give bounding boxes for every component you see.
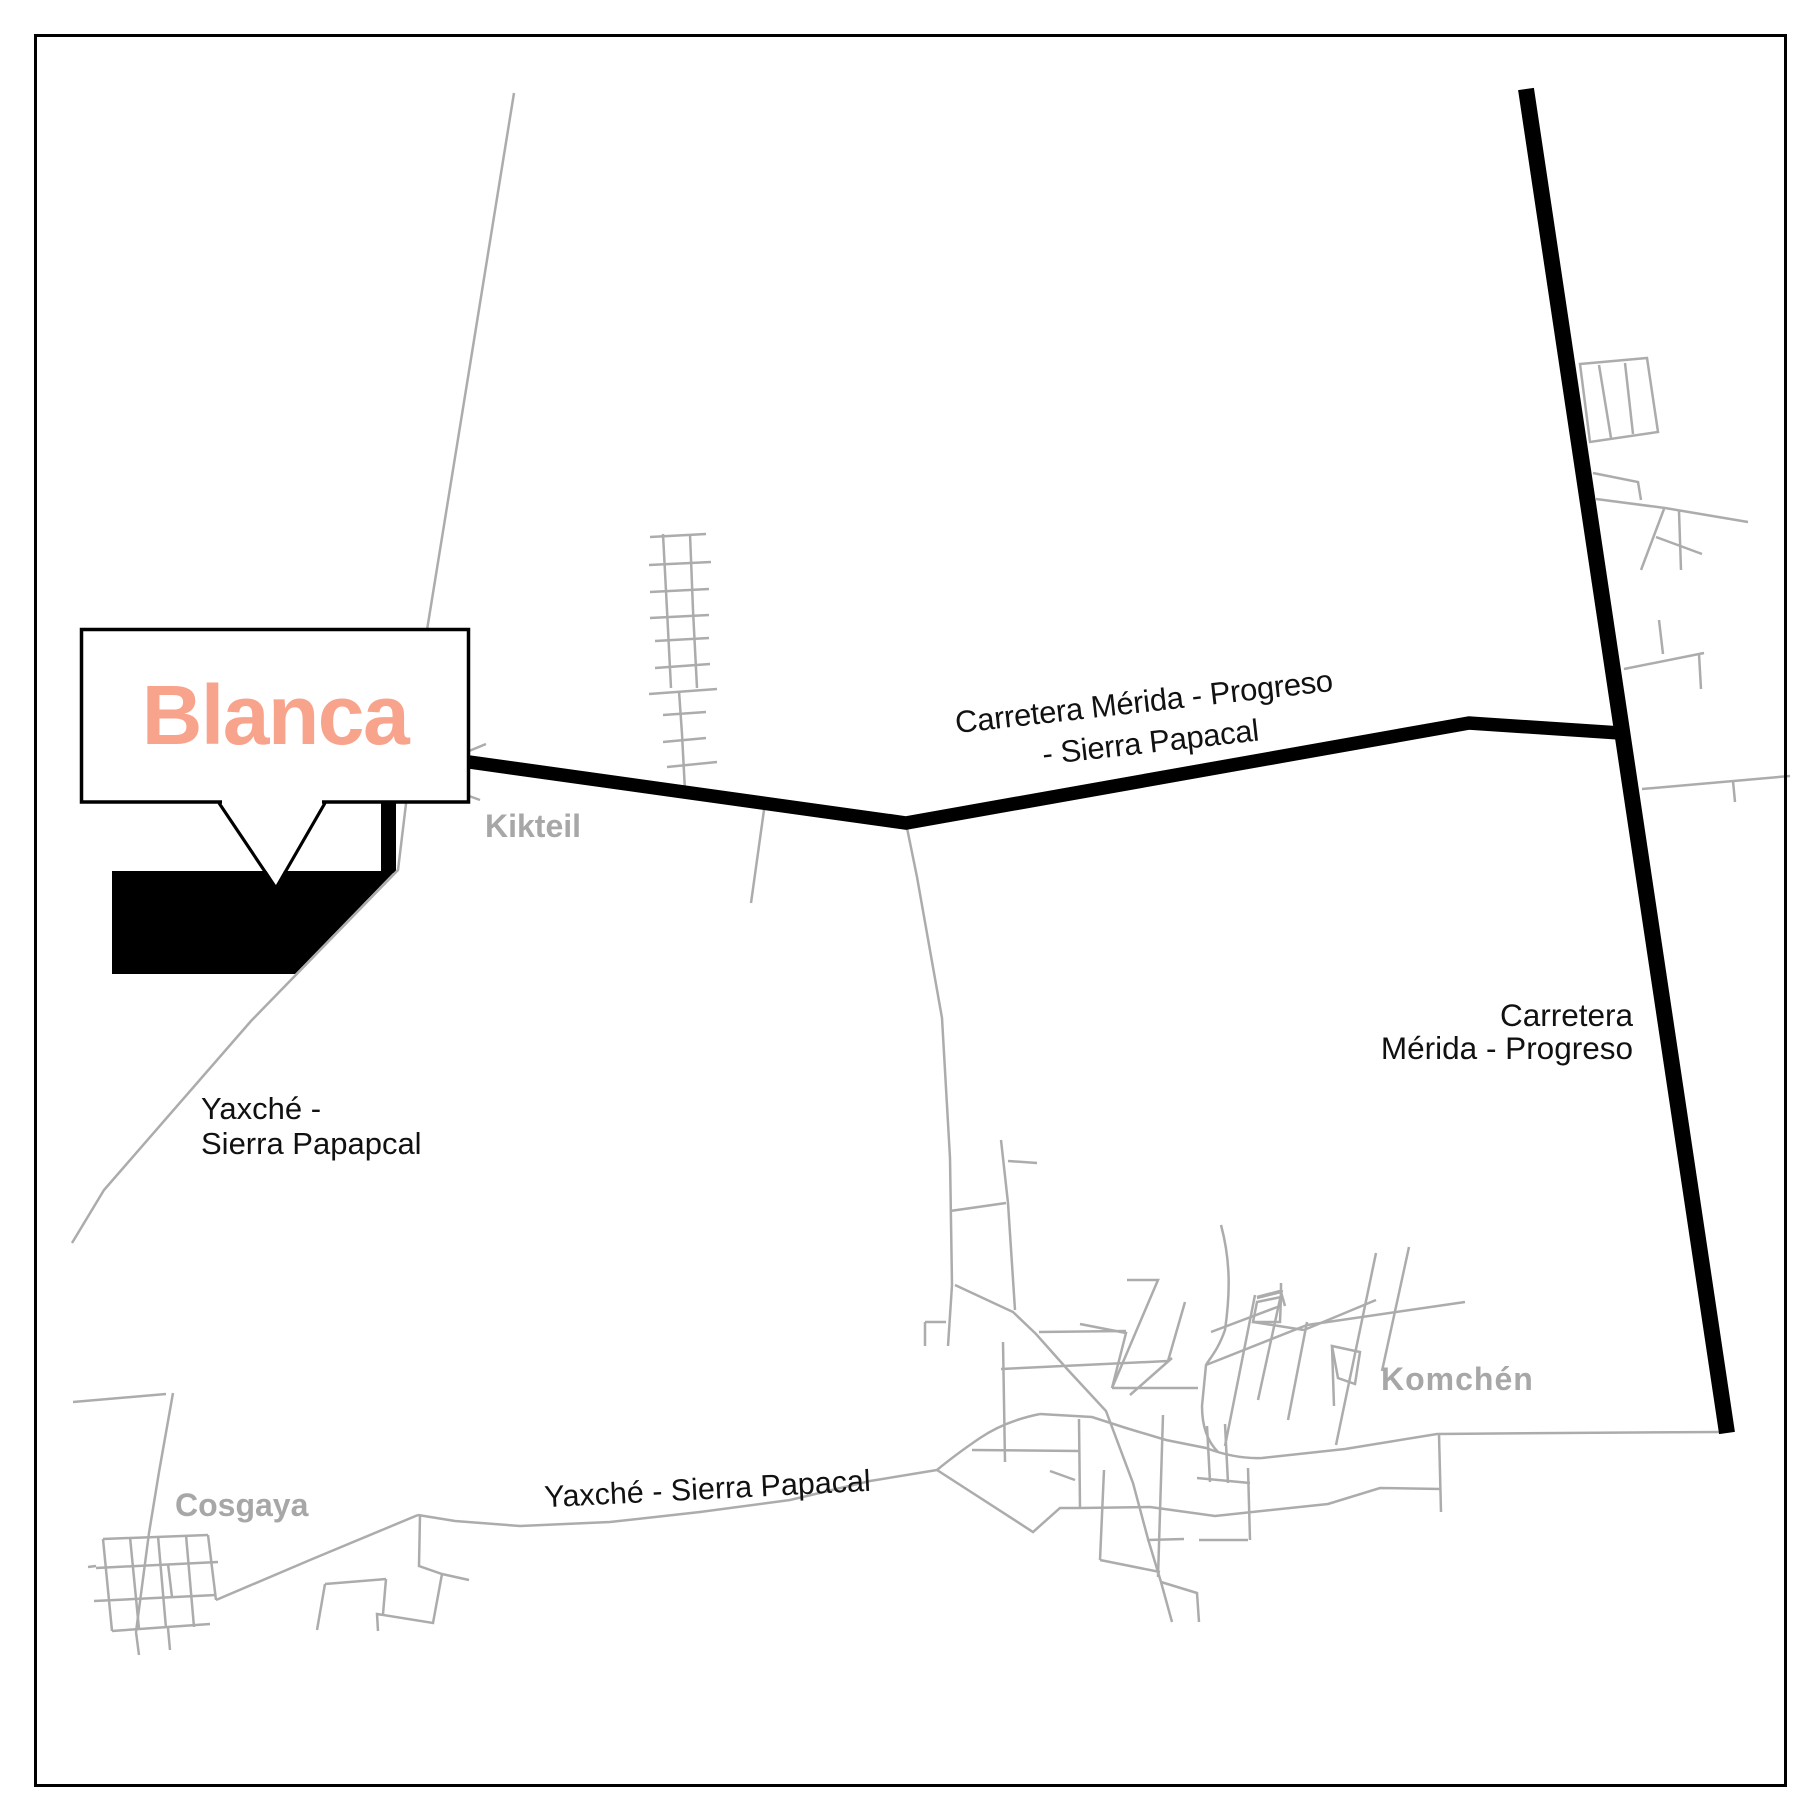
svg-text:Sierra Papapcal: Sierra Papapcal bbox=[201, 1126, 422, 1161]
svg-text:Mérida - Progreso: Mérida - Progreso bbox=[1381, 1030, 1633, 1066]
svg-text:Kikteil: Kikteil bbox=[485, 808, 581, 844]
svg-text:Carretera: Carretera bbox=[1500, 997, 1634, 1033]
svg-text:Cosgaya: Cosgaya bbox=[175, 1487, 309, 1523]
svg-text:Blanca: Blanca bbox=[142, 668, 411, 762]
svg-text:Komchén: Komchén bbox=[1381, 1361, 1534, 1397]
svg-text:Yaxché -: Yaxché - bbox=[201, 1091, 321, 1126]
